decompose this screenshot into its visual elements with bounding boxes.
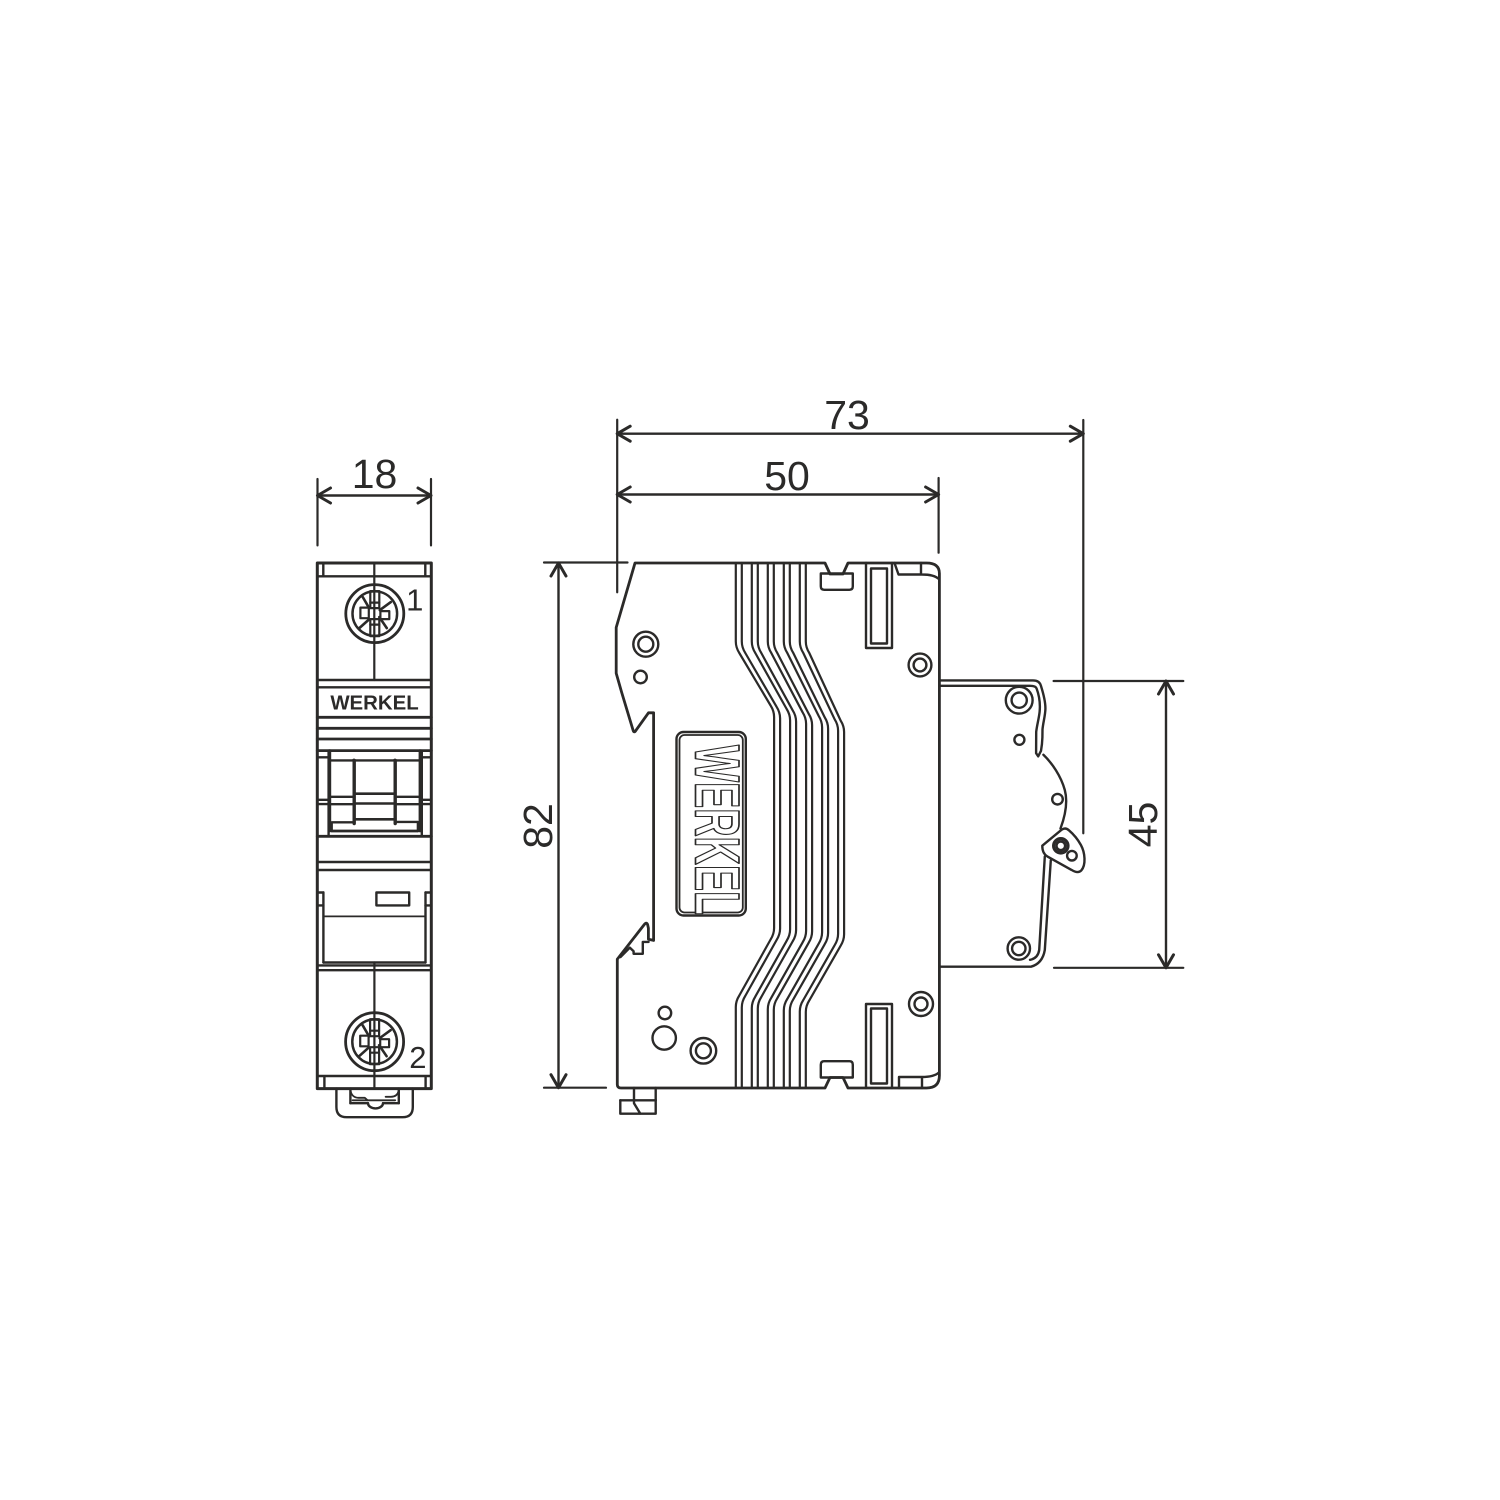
svg-text:1: 1 — [406, 583, 423, 618]
svg-text:50: 50 — [764, 453, 810, 499]
svg-text:WERKEL: WERKEL — [330, 692, 418, 714]
svg-text:82: 82 — [515, 803, 561, 849]
svg-text:18: 18 — [352, 451, 398, 497]
svg-text:2: 2 — [409, 1040, 426, 1075]
svg-text:WERKEL: WERKEL — [682, 745, 752, 915]
svg-text:73: 73 — [824, 392, 870, 438]
svg-text:45: 45 — [1120, 802, 1166, 848]
